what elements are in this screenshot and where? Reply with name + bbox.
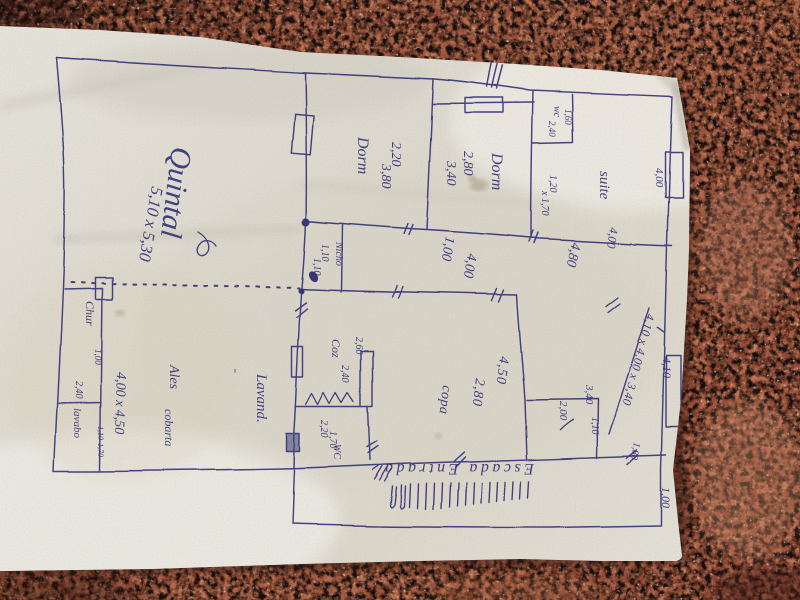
svg-text:1,00: 1,00 [659,487,673,508]
svg-text:1,20: 1,20 [547,175,558,193]
svg-text:2,20: 2,20 [388,142,403,167]
svg-text:2,40: 2,40 [547,121,557,137]
svg-text:WC: WC [331,444,342,459]
svg-text:4,00 x 4,50: 4,00 x 4,50 [111,372,128,435]
svg-text:Escada Entrada: Escada Entrada [381,460,535,477]
svg-text:suite: suite [596,171,612,200]
svg-text:2,80: 2,80 [460,151,475,176]
svg-text:Ales: Ales [166,364,181,390]
svg-text:3,40: 3,40 [443,160,458,186]
svg-text:wc: wc [551,106,562,118]
svg-text:1,10: 1,10 [96,426,105,440]
svg-text:x 1,70: x 1,70 [539,190,550,215]
svg-text:=: = [230,368,239,373]
svg-text:3,40: 3,40 [583,384,595,405]
svg-text:lavabo: lavabo [71,408,83,438]
svg-text:1,60: 1,60 [563,109,573,125]
svg-text:4,00: 4,00 [653,168,665,188]
svg-text:Lavand.: Lavand. [253,373,269,423]
svg-text:2,40: 2,40 [339,365,350,383]
svg-text:2,60: 2,60 [353,337,364,355]
svg-text:3,80: 3,80 [378,163,393,189]
svg-text:1,00: 1,00 [93,349,103,365]
svg-text:1,70: 1,70 [96,443,105,457]
svg-text:1,10: 1,10 [589,417,600,435]
svg-text:4,10: 4,10 [660,357,674,378]
svg-text:Dorm: Dorm [354,136,371,174]
svg-text:2,00: 2,00 [557,401,569,421]
svg-text:Nicho: Nicho [333,241,344,266]
svg-text:cobarta: cobarta [162,409,176,446]
svg-text:Chur: Chur [83,301,97,326]
svg-text:Coz: Coz [329,339,343,358]
svg-text:2,40: 2,40 [73,381,84,399]
svg-text:Dorm: Dorm [488,152,505,190]
svg-text:4,00: 4,00 [604,227,621,250]
svg-text:1,10: 1,10 [311,258,322,276]
